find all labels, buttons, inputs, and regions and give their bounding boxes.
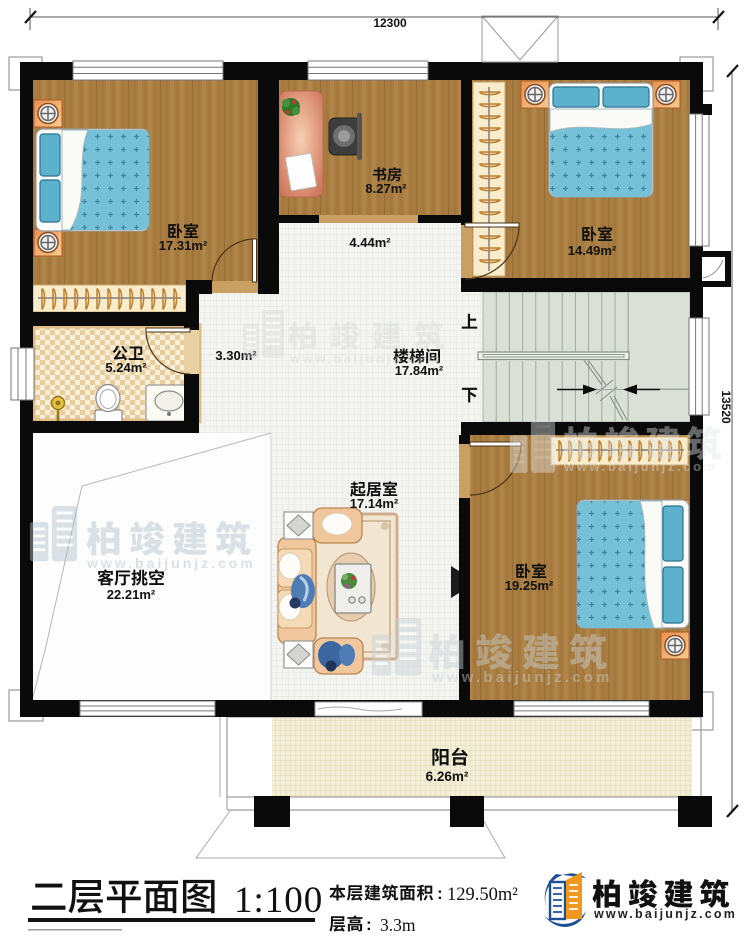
svg-text:14.49m²: 14.49m² (568, 243, 617, 258)
svg-text:12300: 12300 (373, 16, 407, 30)
svg-text:8.27m²: 8.27m² (365, 181, 407, 196)
svg-text:17.14m²: 17.14m² (350, 496, 399, 511)
svg-text:1:100: 1:100 (234, 880, 323, 921)
svg-text:19.25m²: 19.25m² (505, 578, 554, 593)
svg-text::: : (366, 915, 372, 934)
svg-text:6.26m²: 6.26m² (426, 769, 469, 784)
svg-text:www.baijunjz.com: www.baijunjz.com (431, 669, 613, 686)
svg-text:www.baijunjz.com: www.baijunjz.com (86, 555, 256, 571)
svg-text:www.baijunjz.com: www.baijunjz.com (593, 907, 737, 921)
svg-text:www.baijunjz.com: www.baijunjz.com (563, 459, 718, 474)
svg-text:3.3m: 3.3m (380, 915, 416, 935)
svg-text:4.44m²: 4.44m² (349, 235, 391, 250)
svg-text:13520: 13520 (719, 390, 733, 424)
svg-text:www.baijunjz.com: www.baijunjz.com (289, 351, 442, 366)
svg-text:129.50m²: 129.50m² (447, 885, 518, 905)
svg-text:17.31m²: 17.31m² (159, 238, 208, 253)
svg-text:22.21m²: 22.21m² (107, 587, 156, 602)
svg-text::: : (437, 884, 443, 903)
svg-text:5.24m²: 5.24m² (105, 360, 147, 375)
